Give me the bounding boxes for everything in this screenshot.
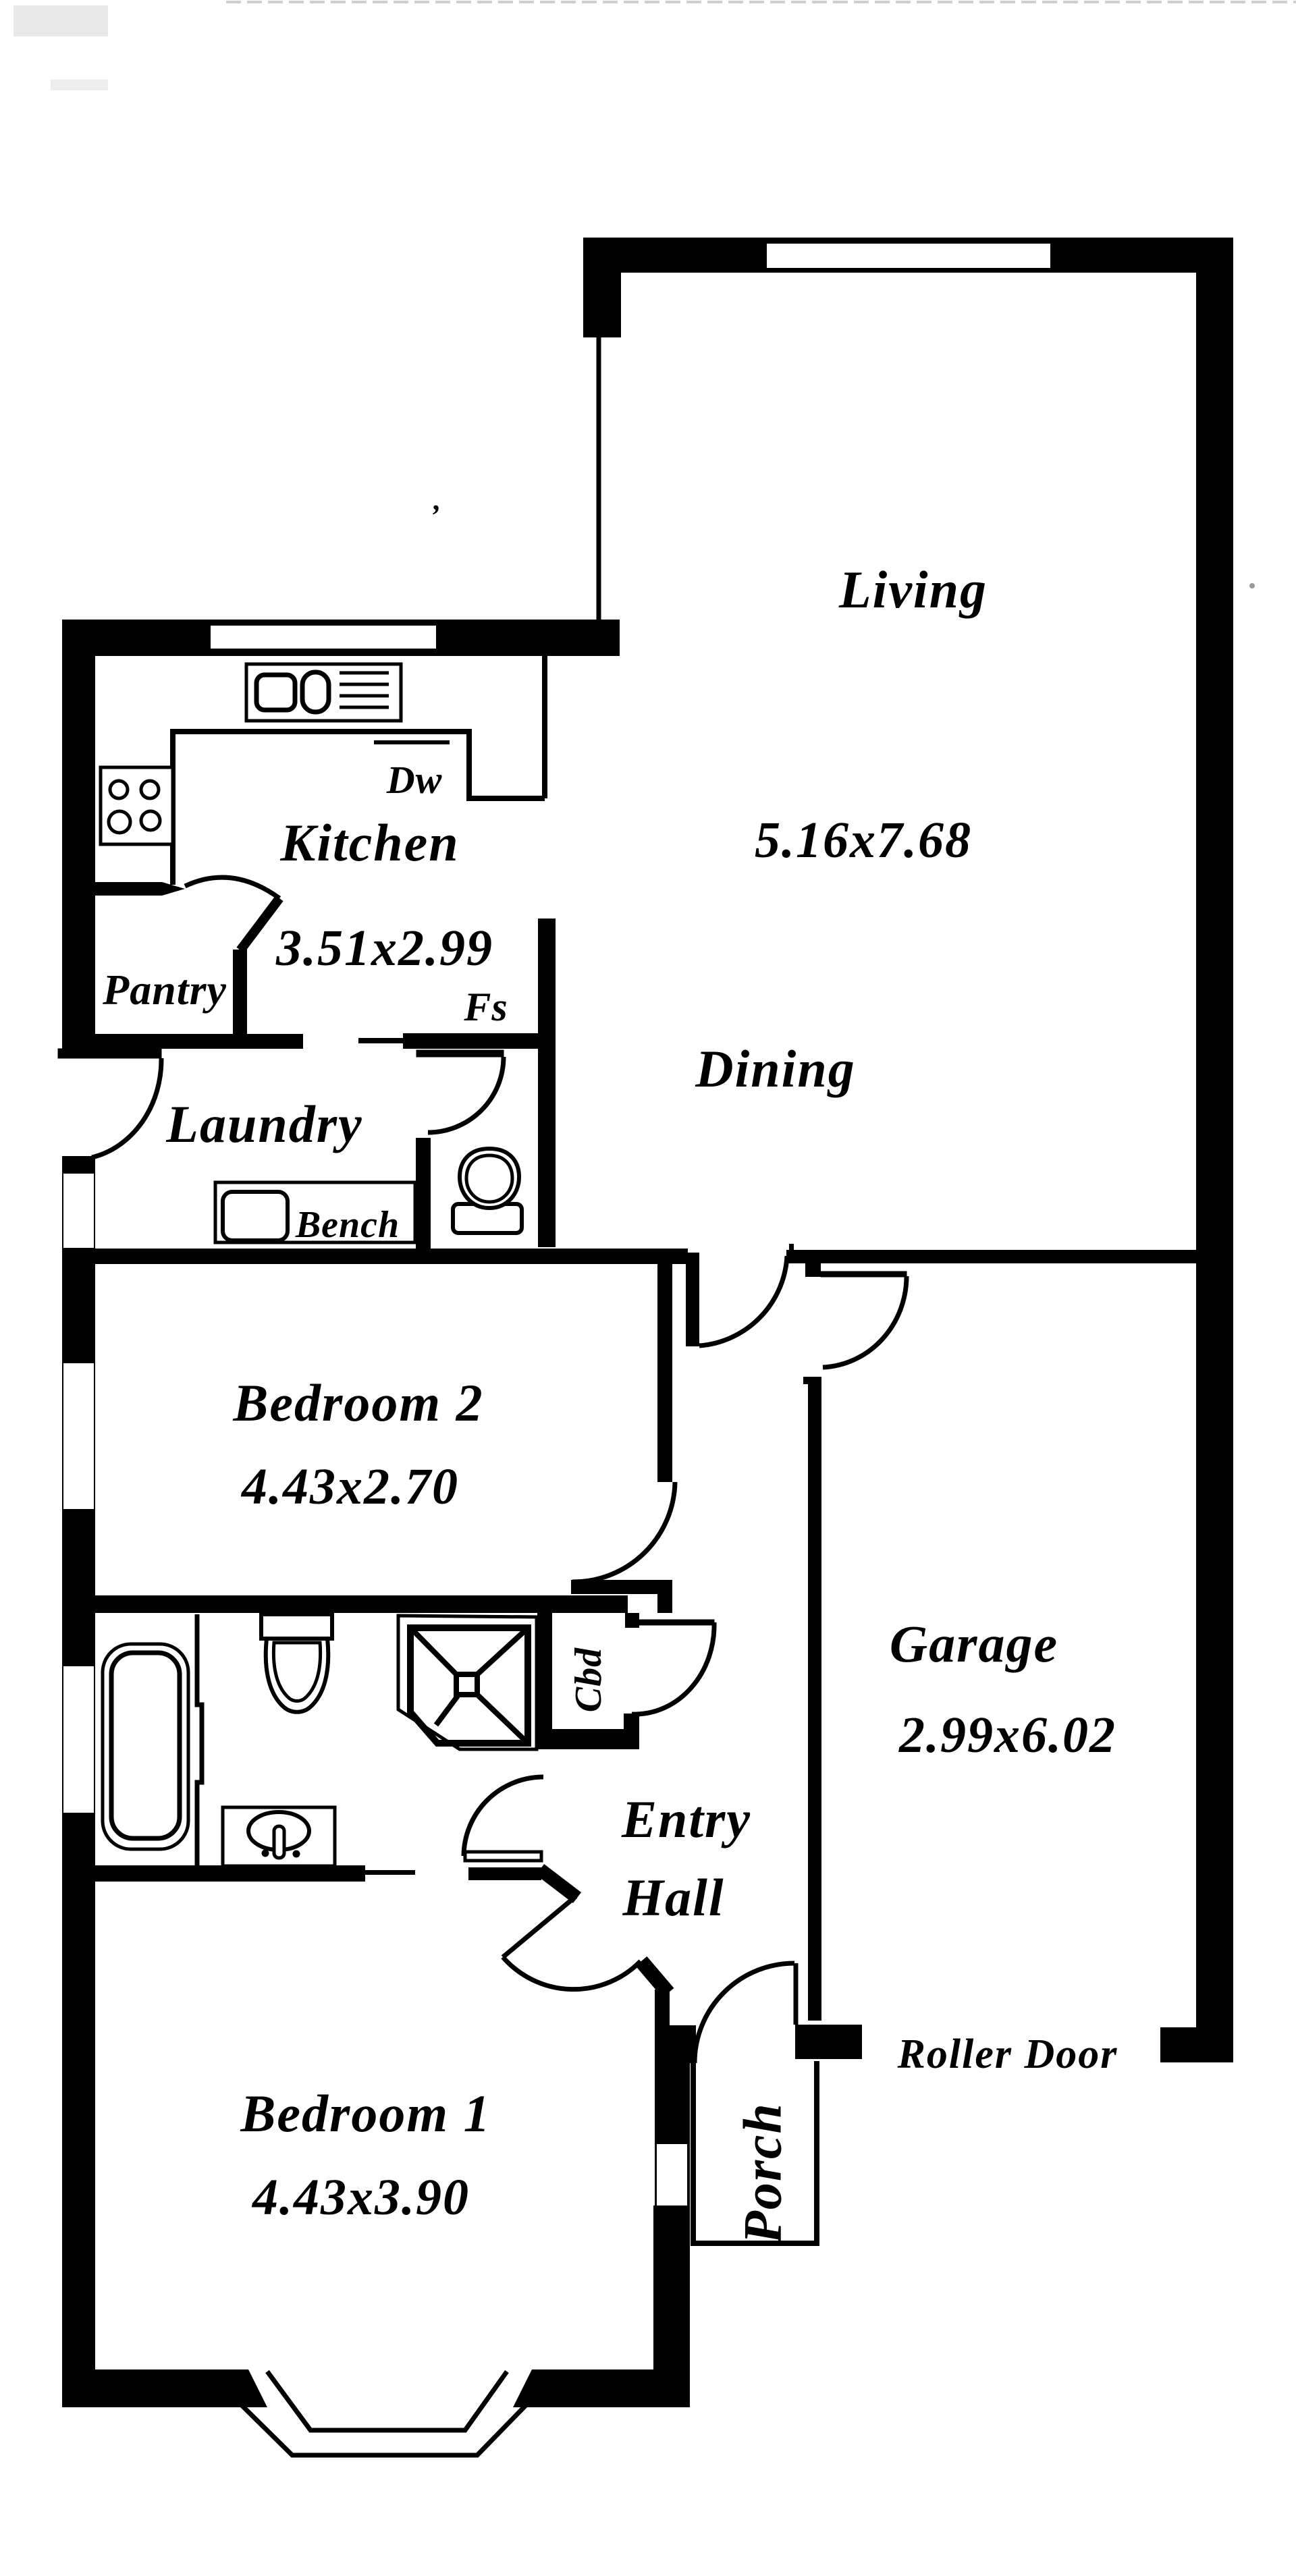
svg-text:Fs: Fs bbox=[463, 985, 508, 1029]
svg-text:4.43x2.70: 4.43x2.70 bbox=[240, 1458, 459, 1515]
svg-text:3.51x2.99: 3.51x2.99 bbox=[275, 920, 493, 977]
svg-text:Living: Living bbox=[838, 560, 988, 619]
svg-text:Bedroom 1: Bedroom 1 bbox=[240, 2084, 491, 2143]
svg-text:Bedroom 2: Bedroom 2 bbox=[232, 1373, 483, 1432]
svg-text:Dining: Dining bbox=[695, 1039, 855, 1098]
svg-text:Bench: Bench bbox=[295, 1204, 400, 1246]
svg-text:Garage: Garage bbox=[890, 1614, 1058, 1673]
svg-text:Entry: Entry bbox=[621, 1790, 751, 1848]
svg-text:Dw: Dw bbox=[386, 758, 443, 802]
svg-text:Kitchen: Kitchen bbox=[279, 813, 459, 872]
svg-text:Pantry: Pantry bbox=[102, 966, 227, 1014]
svg-text:Roller Door: Roller Door bbox=[897, 2031, 1118, 2077]
svg-text:Laundry: Laundry bbox=[165, 1095, 362, 1153]
svg-text:Hall: Hall bbox=[622, 1868, 724, 1927]
svg-text:’: ’ bbox=[430, 499, 440, 532]
svg-text:Porch: Porch bbox=[733, 2102, 792, 2245]
svg-text:2.99x6.02: 2.99x6.02 bbox=[898, 1707, 1116, 1763]
svg-text:Cbd: Cbd bbox=[568, 1647, 610, 1712]
svg-text:4.43x3.90: 4.43x3.90 bbox=[251, 2169, 470, 2226]
svg-text:5.16x7.68: 5.16x7.68 bbox=[755, 812, 972, 869]
